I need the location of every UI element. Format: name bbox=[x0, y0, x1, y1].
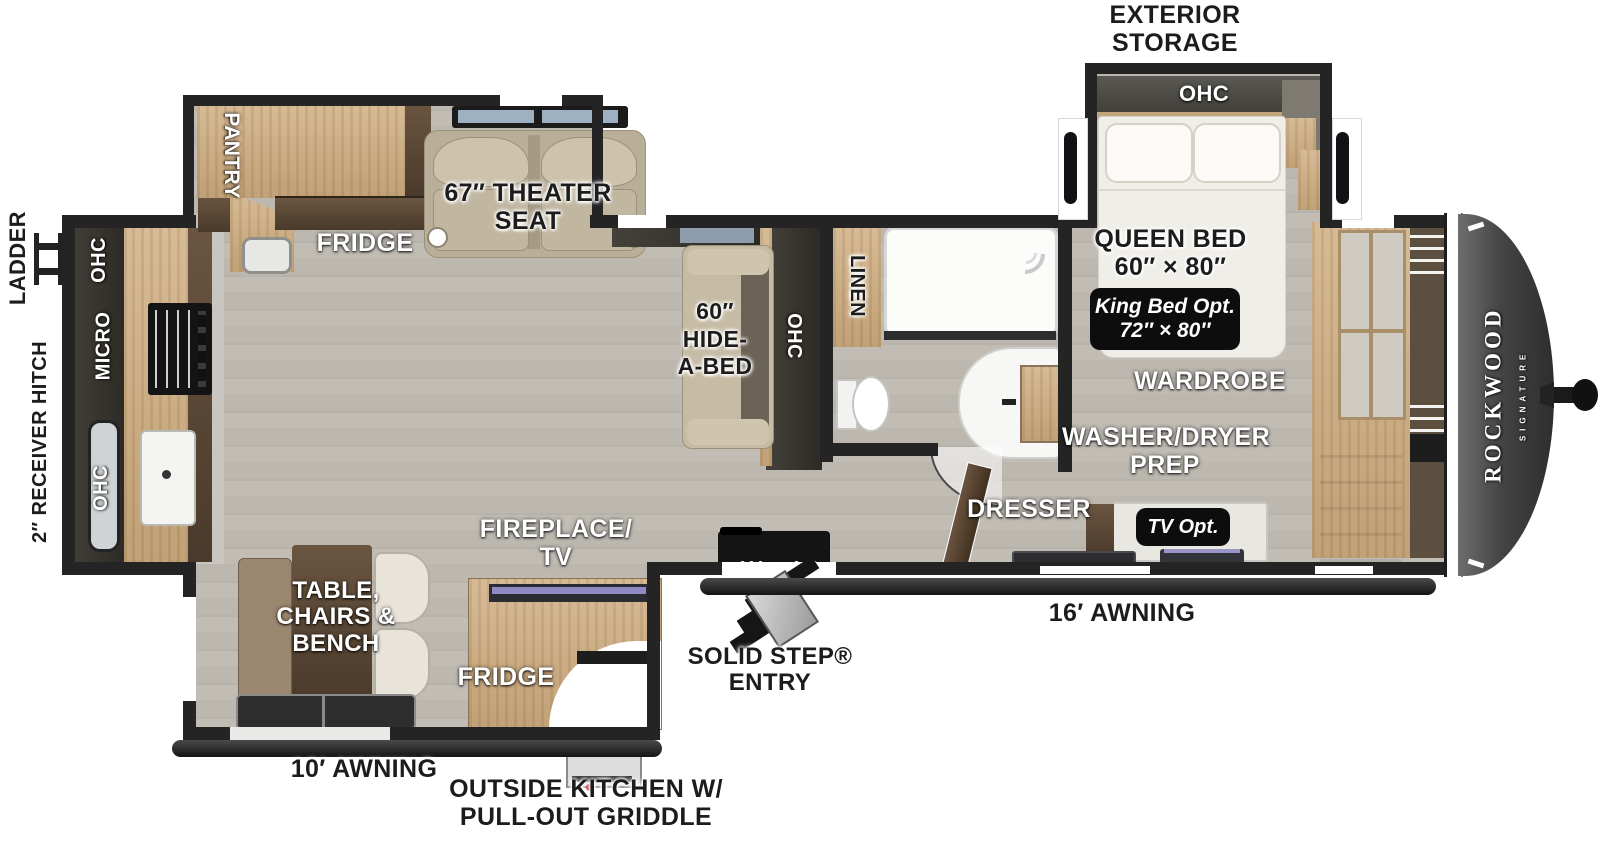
nightstand bbox=[1298, 150, 1322, 210]
tv-screen-edge bbox=[1164, 549, 1240, 553]
mirror-mullion bbox=[1341, 329, 1403, 333]
window bbox=[1040, 566, 1150, 574]
theater-seat-label: 67″ THEATER SEAT bbox=[428, 180, 628, 240]
exterior-storage-label: EXTERIOR STORAGE bbox=[1085, 2, 1265, 54]
solid-step-label: SOLID STEP® ENTRY bbox=[662, 644, 878, 706]
rug-divider bbox=[322, 696, 325, 728]
tv-option-label: TV Opt. bbox=[1136, 508, 1230, 546]
bedroom-ohc-label: OHC bbox=[1164, 82, 1244, 108]
queen-bed-label: QUEEN BED 60″ × 80″ bbox=[1078, 226, 1263, 286]
entertainment-cabinet bbox=[468, 578, 662, 730]
wardrobe-cabinet bbox=[1312, 222, 1410, 558]
outside-kitchen-label: OUTSIDE KITCHEN W/ PULL-OUT GRIDDLE bbox=[438, 776, 734, 840]
window bbox=[500, 95, 562, 106]
bathroom-vanity bbox=[958, 347, 1062, 459]
faucet-icon bbox=[1002, 399, 1016, 405]
tv-screen bbox=[680, 228, 754, 243]
rv-floorplan: ROCKWOOD SIGNATURE EXTERIOR STORAGE LADD… bbox=[0, 0, 1600, 846]
kitchen-ohc-lower-label: OHC bbox=[49, 438, 153, 538]
awning-16-bar bbox=[700, 578, 1436, 595]
fireplace-tv-label: FIREPLACE/ TV bbox=[470, 516, 642, 574]
faucet-icon bbox=[162, 470, 171, 479]
window bbox=[1064, 132, 1077, 204]
wardrobe-label: WARDROBE bbox=[1126, 368, 1294, 402]
dresser-label: DRESSER bbox=[960, 496, 1098, 528]
outside-fridge-label: FRIDGE bbox=[450, 664, 562, 694]
cap-mark bbox=[1468, 559, 1485, 569]
window-pane bbox=[458, 110, 534, 123]
tv-glass bbox=[492, 587, 646, 594]
wall bbox=[820, 443, 938, 456]
dinette-label: TABLE, CHAIRS & BENCH bbox=[268, 578, 404, 670]
washer-dryer-label: WASHER/DRYER PREP bbox=[1062, 424, 1268, 490]
stove-knobs bbox=[198, 311, 206, 387]
wall bbox=[62, 562, 196, 575]
sofa-armrest bbox=[687, 249, 769, 275]
kitchen-micro-label: MICRO bbox=[45, 288, 161, 404]
medicine-cabinet bbox=[1020, 365, 1062, 443]
window bbox=[1336, 132, 1349, 204]
rug-mat bbox=[236, 694, 416, 730]
pantry-label: PANTRY bbox=[171, 96, 291, 216]
window bbox=[230, 727, 390, 740]
fridge-label: FRIDGE bbox=[300, 230, 430, 260]
tv-screen bbox=[489, 584, 649, 602]
fridge-cabinet bbox=[275, 196, 431, 230]
king-bed-option-label: King Bed Opt. 72″ × 80″ bbox=[1090, 288, 1240, 350]
ohc-tv-strip bbox=[612, 225, 762, 247]
slide-wall bbox=[647, 562, 660, 740]
cap-mark bbox=[1468, 222, 1485, 232]
linen-label: LINEN bbox=[797, 226, 917, 346]
awning-10-label: 10′ AWNING bbox=[278, 756, 450, 790]
window bbox=[183, 597, 196, 701]
mirror-mullion bbox=[1369, 233, 1373, 417]
washer-dryer-cabinet bbox=[1320, 432, 1402, 562]
griddle-shelf bbox=[577, 651, 657, 664]
corner-sink bbox=[242, 237, 292, 274]
sofa-armrest bbox=[687, 419, 769, 445]
fireplace-arch bbox=[549, 641, 661, 729]
pillow bbox=[1193, 123, 1281, 183]
awning-16-label: 16′ AWNING bbox=[1028, 600, 1216, 634]
slide-wall bbox=[1085, 63, 1332, 74]
bed-crease bbox=[1099, 189, 1285, 191]
pillow bbox=[1105, 123, 1193, 183]
window-pane bbox=[542, 110, 618, 123]
griddle-handle bbox=[720, 527, 762, 535]
toilet-bowl bbox=[852, 376, 890, 432]
brand-tagline: SIGNATURE bbox=[1444, 300, 1600, 490]
wardrobe-mirror bbox=[1338, 230, 1406, 420]
window bbox=[1315, 566, 1373, 574]
slide-wall bbox=[1320, 63, 1332, 228]
